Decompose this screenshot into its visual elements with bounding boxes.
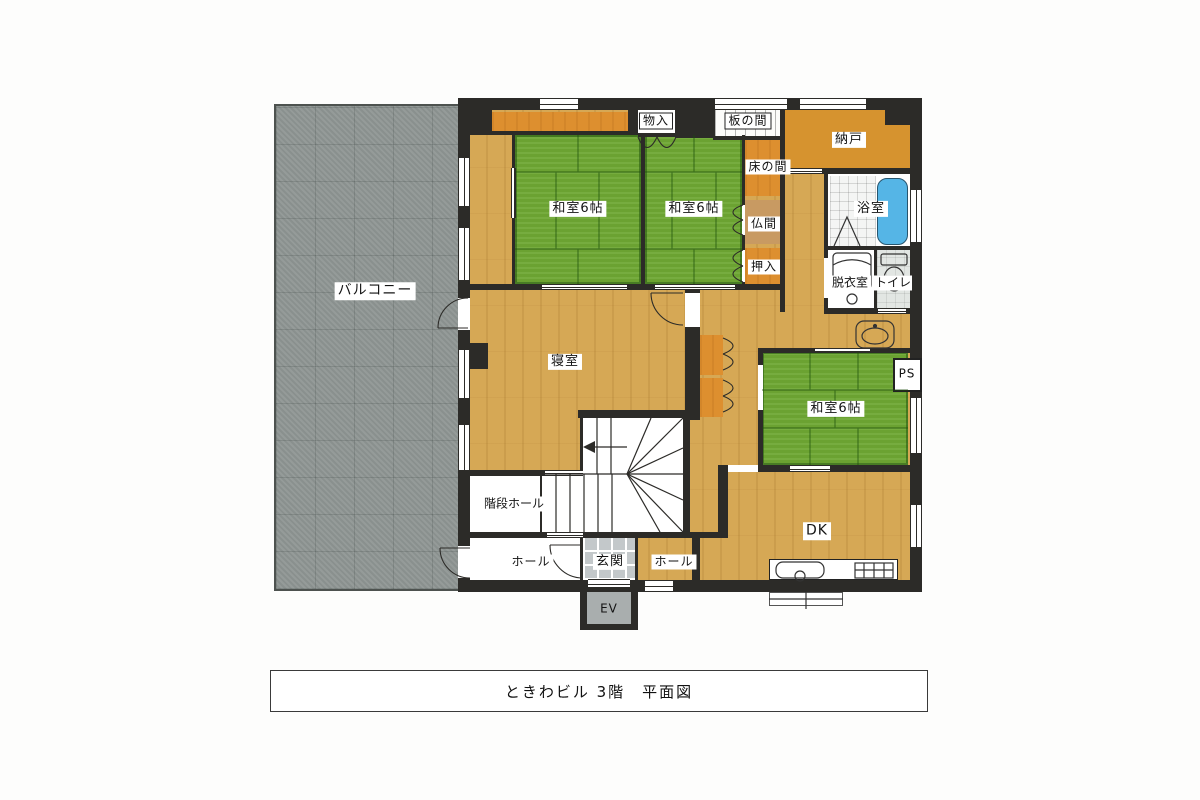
window-glyph — [910, 505, 922, 547]
door-opening — [742, 250, 745, 282]
room-label-genkan: 玄関 — [593, 554, 627, 570]
room-label-ps: PS — [899, 367, 916, 382]
window-glyph — [511, 168, 516, 218]
window-glyph — [542, 284, 627, 290]
door-opening — [728, 465, 758, 472]
room-label-balcony: バルコニー — [335, 282, 416, 300]
room-label-toilet: トイレ — [874, 276, 912, 291]
room-label-hall-west: ホール — [508, 555, 553, 570]
window-glyph — [790, 168, 822, 174]
window-glyph — [910, 398, 922, 453]
room-label-nando: 納戸 — [832, 132, 866, 148]
elevator-door — [588, 579, 630, 588]
window-glyph — [458, 425, 470, 470]
room-label-washitsu-3: 和室6帖 — [807, 401, 864, 417]
window-glyph — [815, 348, 870, 353]
room-label-itanoma: 板の間 — [724, 113, 771, 130]
window-glyph — [645, 580, 673, 592]
window-glyph — [545, 470, 583, 476]
window-glyph — [458, 350, 470, 398]
room-label-oshiire: 押入 — [748, 260, 780, 275]
floor-plan: バルコニー 物入 板の間 納戸 床の間 和室6帖 和室6帖 浴室 仏間 押入 脱… — [0, 0, 1200, 800]
window-glyph — [547, 532, 583, 538]
kitchen-counter — [769, 559, 898, 580]
window-glyph — [715, 98, 787, 110]
room-label-dk: DK — [803, 522, 831, 540]
room-label-washitsu-1: 和室6帖 — [549, 201, 606, 217]
title-block: ときわビル 3階 平面図 — [270, 670, 928, 712]
window-glyph — [790, 465, 830, 472]
door-opening — [742, 205, 745, 235]
door-opening — [758, 365, 763, 410]
room-label-bathroom: 浴室 — [854, 201, 888, 217]
door-opening — [458, 298, 470, 330]
title-text: ときわビル 3階 平面図 — [505, 681, 693, 702]
door-opening — [458, 546, 470, 578]
room-label-dressing: 脱衣室 — [829, 276, 871, 291]
window-glyph — [540, 98, 578, 110]
room-label-bedroom: 寝室 — [548, 354, 582, 370]
room-label-hall-east: ホール — [651, 555, 696, 570]
room-label-butsuma: 仏間 — [748, 217, 780, 232]
room-label-tokonoma: 床の間 — [745, 160, 790, 175]
window-glyph — [458, 228, 470, 280]
room-label-stair-hall: 階段ホール — [481, 497, 547, 512]
window-glyph — [878, 308, 906, 314]
room-label-ev: EV — [597, 602, 621, 617]
window-glyph — [910, 190, 922, 242]
room-label-storage-top: 物入 — [639, 113, 673, 130]
room-label-washitsu-2: 和室6帖 — [665, 201, 722, 217]
door-opening — [685, 293, 700, 327]
window-glyph — [458, 158, 470, 206]
window-glyph — [655, 284, 735, 290]
window-glyph — [800, 98, 866, 110]
kitchen-side-table — [769, 592, 843, 606]
door-opening — [824, 258, 828, 298]
